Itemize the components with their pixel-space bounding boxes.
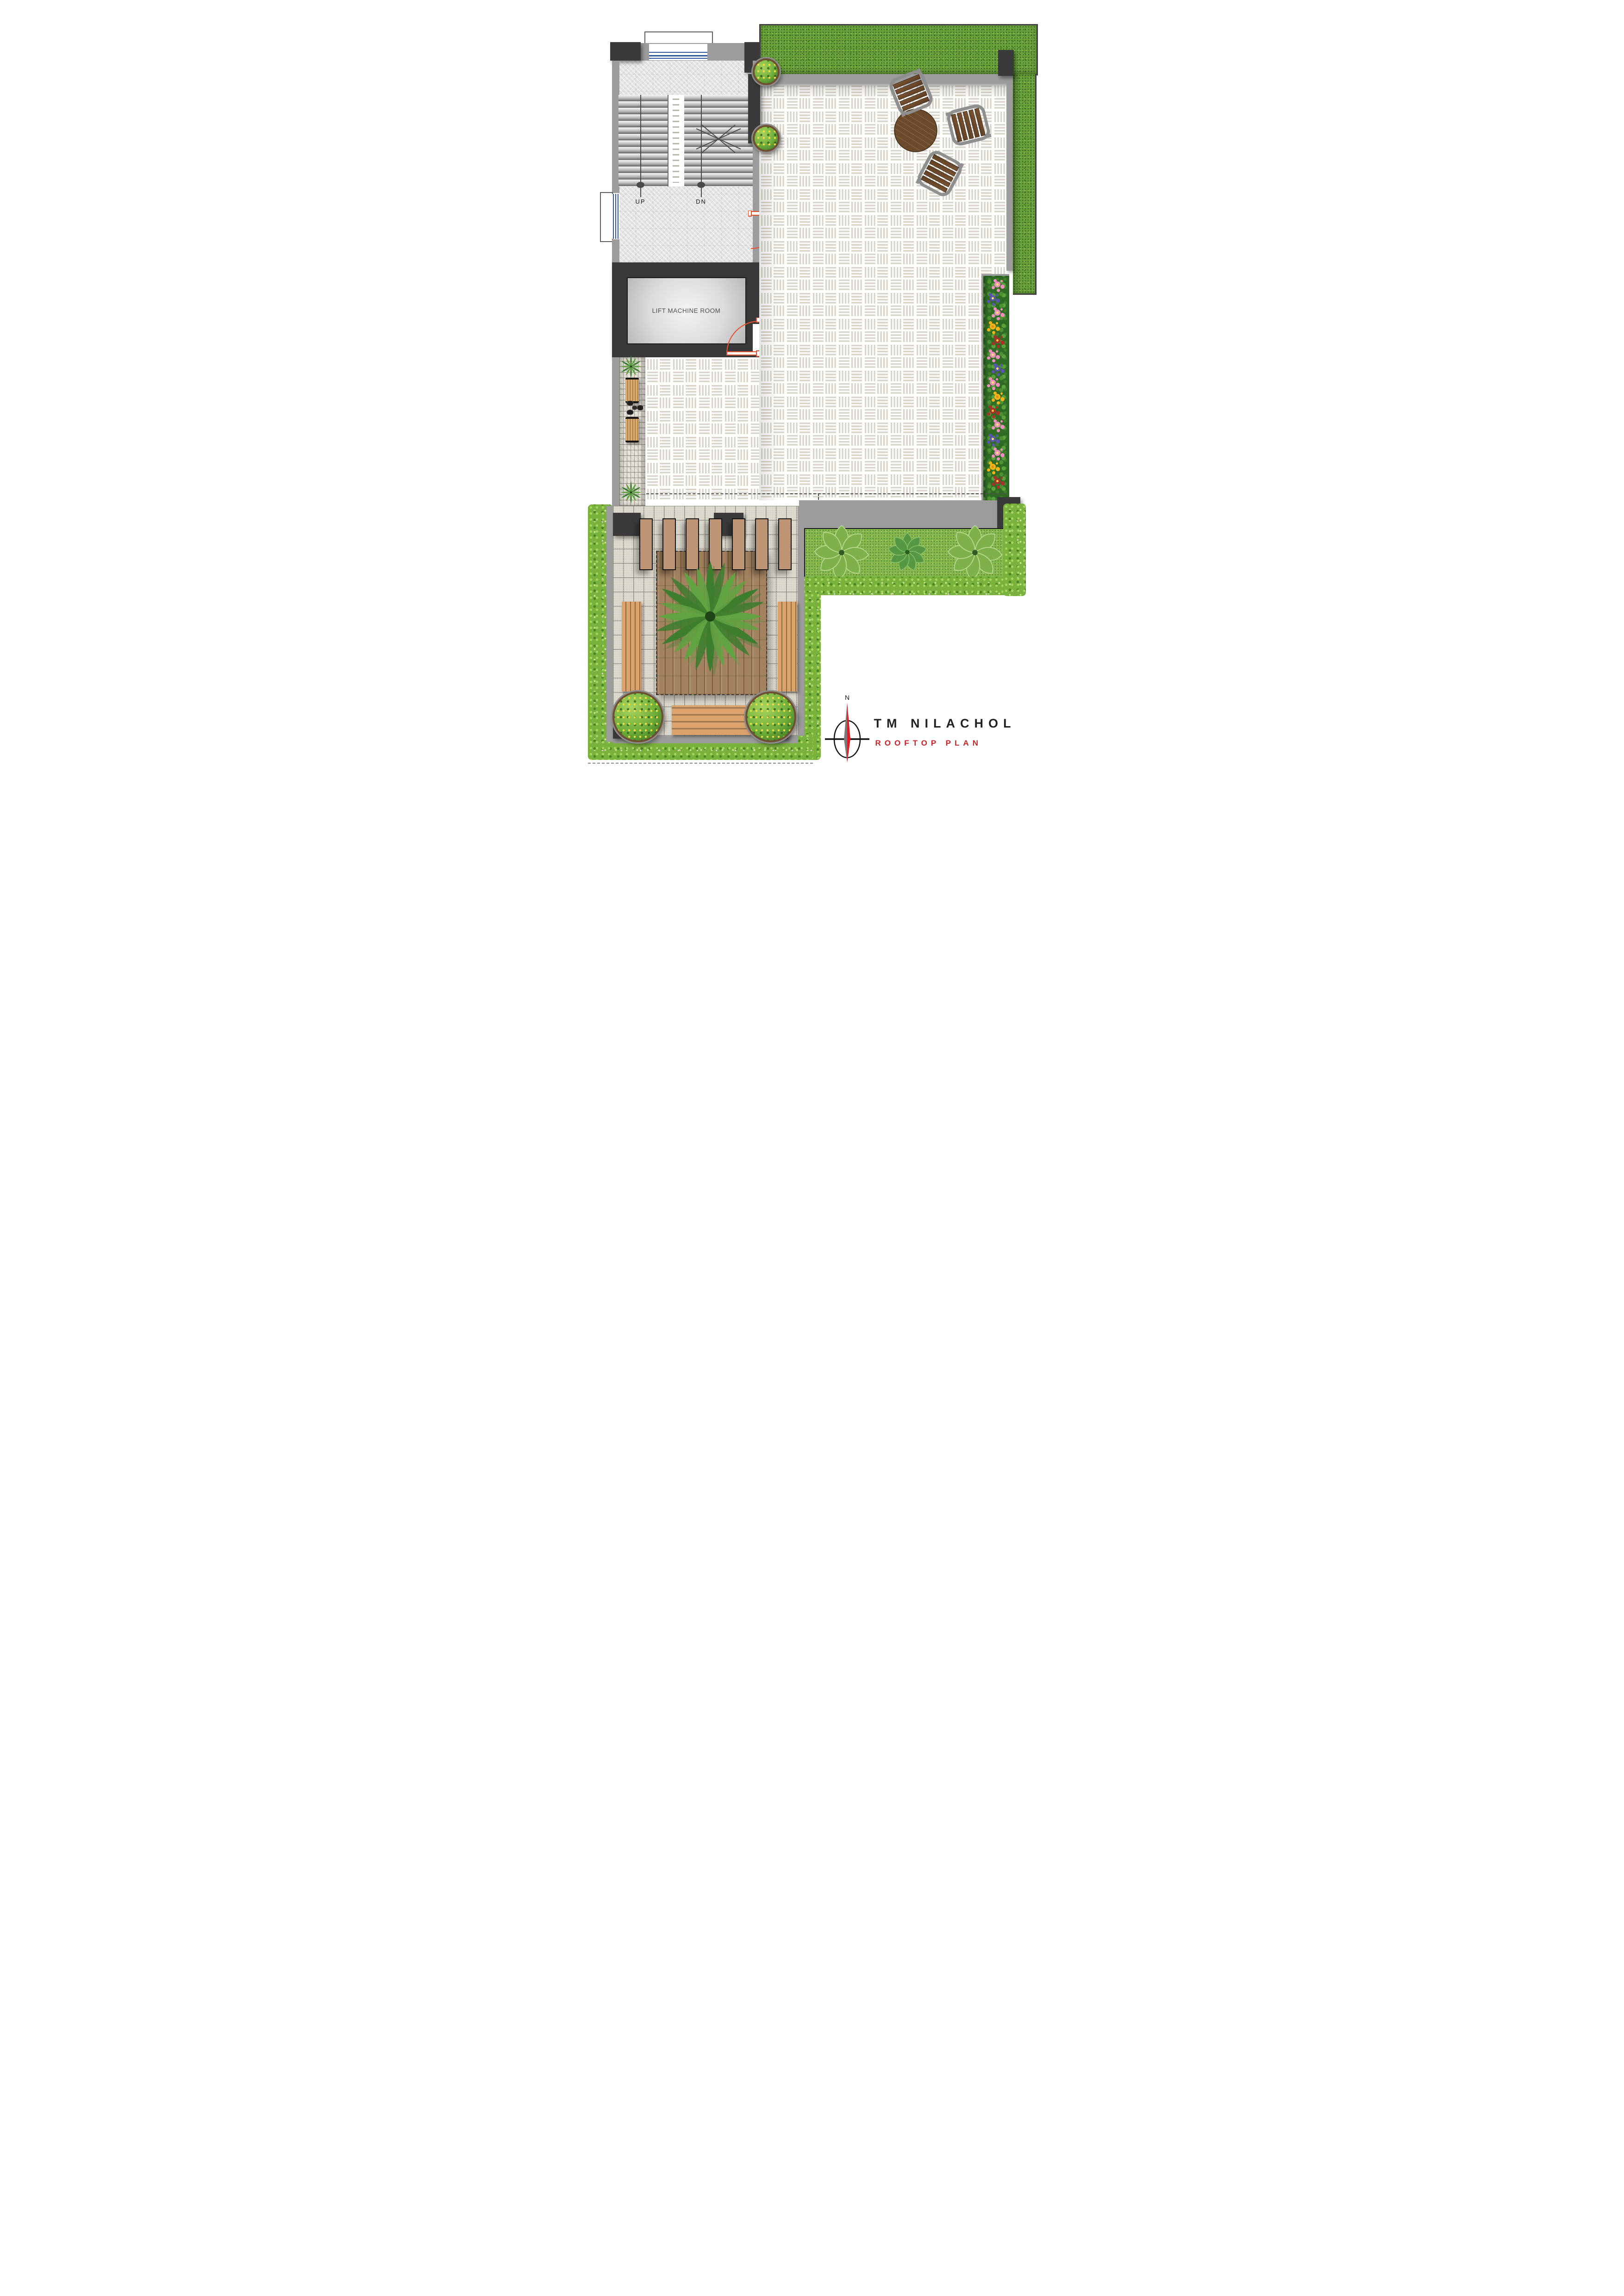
terrace-seating-set xyxy=(870,65,1014,204)
stair-flight-up xyxy=(618,95,668,187)
flower-cluster-purple xyxy=(994,366,1000,372)
up-flow-dot xyxy=(637,182,644,188)
stair-divider xyxy=(668,95,686,187)
label-dn: DN xyxy=(690,198,712,205)
flower-cluster-yellow xyxy=(994,394,1000,400)
bed-alocasia-right xyxy=(943,520,1007,585)
grass-border-right xyxy=(1013,74,1037,295)
project-title: TM NILACHOL xyxy=(874,716,1016,731)
bed-alocasia-left xyxy=(809,520,874,585)
terrace-chair-1 xyxy=(887,66,935,118)
terrace-chair-3 xyxy=(914,147,965,200)
stairwell-left-wall-lower xyxy=(612,239,619,262)
flower-cluster-pink xyxy=(994,450,1000,456)
dn-flow-dot xyxy=(697,182,705,188)
stair-left-window xyxy=(611,194,619,239)
dn-flow-line xyxy=(701,95,702,184)
pergola-slat xyxy=(778,518,792,570)
label-up: UP xyxy=(630,198,652,205)
courtyard-palm-tree xyxy=(650,556,770,677)
flower-cluster-red xyxy=(990,408,996,414)
walkway-palm-plant-2 xyxy=(619,480,643,504)
bed-hedge-east xyxy=(1003,504,1026,596)
courtyard-planter-se xyxy=(745,691,796,742)
flower-cluster-red xyxy=(994,478,1000,484)
flower-cluster-pink xyxy=(990,380,996,386)
flower-cluster-pink xyxy=(994,422,1000,428)
flower-cluster-red xyxy=(994,337,1000,343)
walkway-stool-set xyxy=(626,401,643,415)
walkway-bench-1 xyxy=(625,378,639,403)
flower-cluster-pink xyxy=(994,281,1000,287)
courtyard-bench-south xyxy=(672,705,750,735)
label-lift-machine-room: LIFT MACHINE ROOM xyxy=(652,307,721,315)
up-flow-line xyxy=(640,95,641,184)
lift-door-swing xyxy=(719,317,761,357)
flower-cluster-yellow xyxy=(990,464,996,470)
flower-cluster-purple xyxy=(990,295,996,301)
bed-syngonium-center xyxy=(881,526,934,579)
west-boundary-wall xyxy=(612,357,619,506)
flower-cluster-pink xyxy=(990,352,996,358)
north-compass: N xyxy=(825,693,869,764)
terrace-table xyxy=(890,106,942,154)
courtyard-south-dashed-line xyxy=(588,763,813,764)
stair-top-window xyxy=(649,44,707,60)
courtyard-west-wall xyxy=(606,506,613,742)
rooftop-plan-sheet: UP DN LIFT MACHINE ROOM xyxy=(542,0,1083,765)
compass-north-letter: N xyxy=(844,694,849,701)
flower-cluster-purple xyxy=(990,436,996,442)
terrace-chair-2 xyxy=(943,103,993,147)
dashed-boundary-horizontal xyxy=(646,493,1006,494)
courtyard-bench-east xyxy=(778,602,797,691)
terrace-shrub-pot-1 xyxy=(753,58,780,85)
dn-flow-stub xyxy=(701,188,702,197)
terrace-shrub-pot-2 xyxy=(753,125,780,152)
walkway-palm-plant-1 xyxy=(619,355,643,379)
flower-cluster-pink xyxy=(994,310,1000,316)
up-flow-stub xyxy=(640,188,641,197)
drawing-title: ROOFTOP PLAN xyxy=(875,739,982,748)
courtyard-east-wall xyxy=(798,506,804,736)
column-stair-topleft xyxy=(610,42,641,61)
walkway-bench-2 xyxy=(625,417,639,442)
flower-cluster-yellow xyxy=(990,324,996,330)
courtyard-planter-sw xyxy=(612,691,663,742)
flower-bed xyxy=(981,274,1009,502)
bed-hedge-south xyxy=(801,577,1013,595)
courtyard-bench-west xyxy=(622,602,641,691)
